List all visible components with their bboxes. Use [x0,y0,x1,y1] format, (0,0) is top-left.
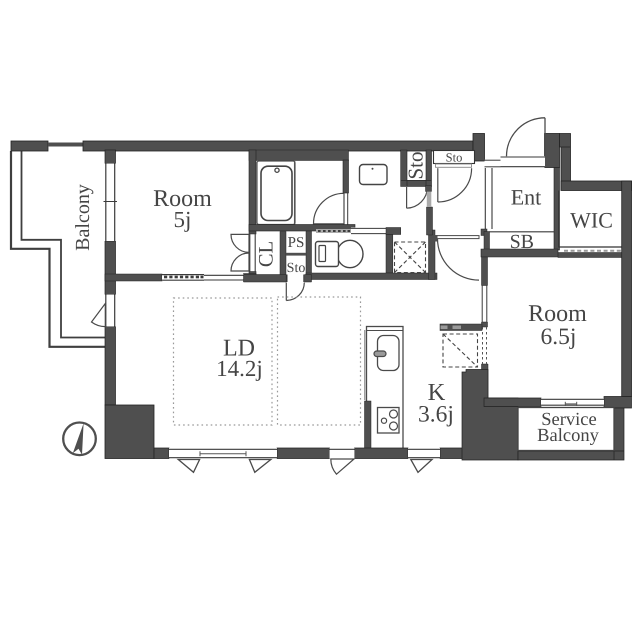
svg-text:CL: CL [256,241,278,267]
svg-text:5j: 5j [174,207,192,232]
svg-text:Balcony: Balcony [537,426,599,446]
svg-text:Sto: Sto [287,261,306,276]
svg-text:3.6j: 3.6j [418,402,454,428]
svg-text:6.5j: 6.5j [541,324,577,350]
svg-text:Ent: Ent [511,185,542,210]
svg-text:Balcony: Balcony [72,184,94,251]
svg-text:14.2j: 14.2j [216,356,263,381]
svg-text:WIC: WIC [570,208,613,233]
svg-text:Sto: Sto [446,151,463,165]
svg-text:Sto: Sto [404,151,428,179]
svg-text:PS: PS [288,235,305,251]
